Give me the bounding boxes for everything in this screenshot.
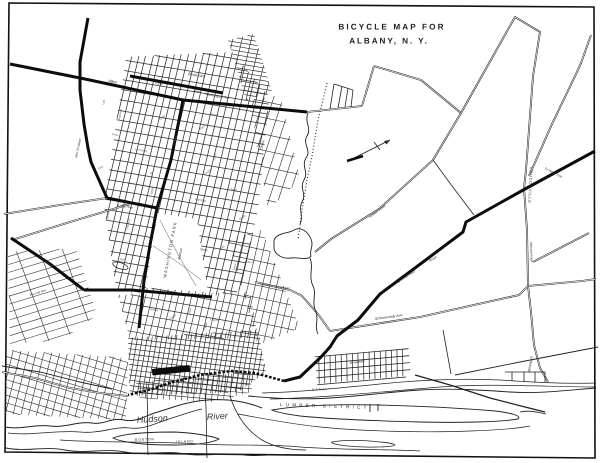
svg-text:BICYCLE MAP FOR: BICYCLE MAP FOR xyxy=(338,23,445,32)
svg-text:BOSTON: BOSTON xyxy=(135,437,155,442)
svg-text:Menand Road: Menand Road xyxy=(529,242,534,262)
svg-text:ISLAND: ISLAND xyxy=(176,439,194,444)
svg-text:CANAL: CANAL xyxy=(312,387,328,392)
svg-text:ALBANY, N. Y.: ALBANY, N. Y. xyxy=(349,37,429,46)
svg-text:River: River xyxy=(206,410,229,422)
